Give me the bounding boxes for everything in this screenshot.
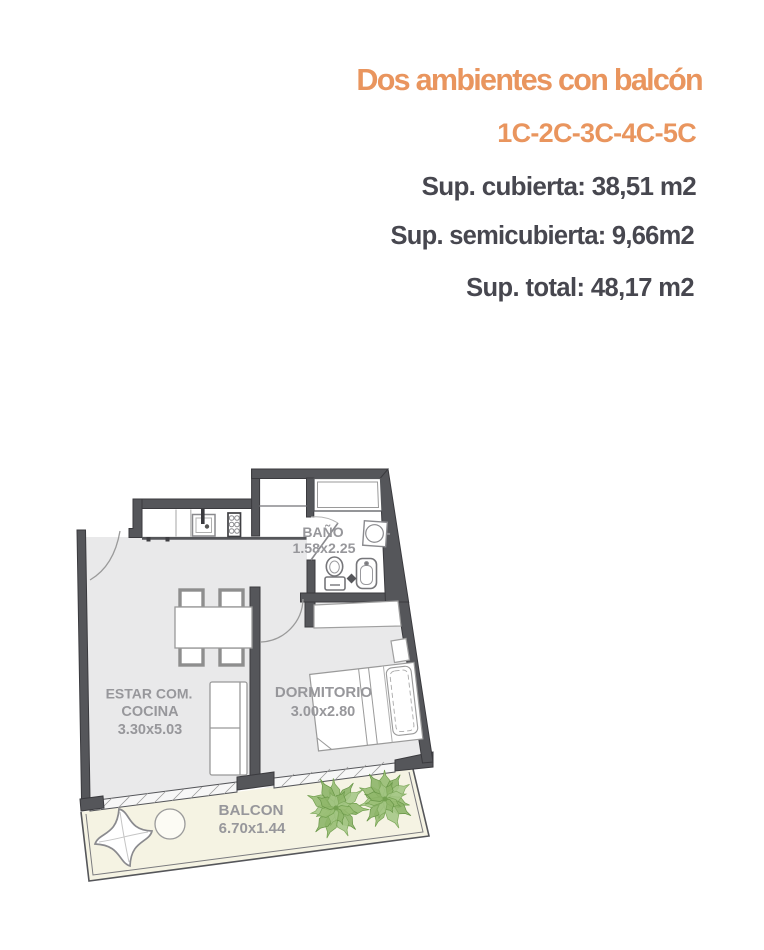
svg-text:DORMITORIO: DORMITORIO (275, 684, 373, 701)
svg-text:BAÑO: BAÑO (302, 523, 343, 540)
svg-text:BALCON: BALCON (219, 802, 284, 819)
svg-text:6.70x1.44: 6.70x1.44 (219, 820, 286, 837)
svg-text:3.30x5.03: 3.30x5.03 (118, 722, 183, 738)
svg-text:1.58x2.25: 1.58x2.25 (292, 541, 355, 557)
svg-text:ESTAR COM.: ESTAR COM. (106, 686, 193, 702)
svg-text:COCINA: COCINA (121, 704, 179, 720)
svg-text:3.00x2.80: 3.00x2.80 (291, 704, 356, 720)
